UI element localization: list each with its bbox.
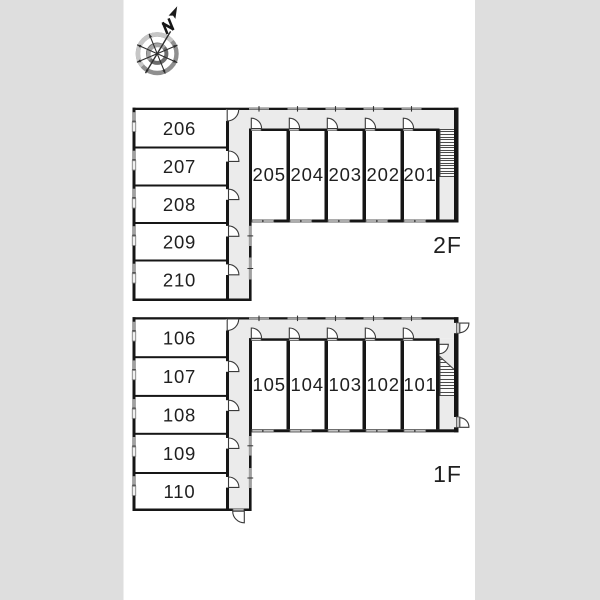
svg-text:107: 107	[163, 366, 196, 387]
svg-text:105: 105	[253, 374, 286, 395]
svg-text:101: 101	[403, 374, 436, 395]
svg-text:110: 110	[164, 481, 196, 502]
svg-text:206: 206	[163, 118, 196, 139]
svg-text:208: 208	[163, 194, 196, 215]
svg-text:205: 205	[253, 164, 286, 185]
svg-text:104: 104	[291, 374, 324, 395]
svg-text:210: 210	[163, 270, 196, 291]
svg-text:207: 207	[163, 156, 196, 177]
svg-text:204: 204	[291, 164, 324, 185]
svg-text:103: 103	[329, 374, 362, 395]
svg-text:209: 209	[163, 231, 196, 252]
svg-text:201: 201	[403, 164, 436, 185]
svg-text:203: 203	[329, 164, 362, 185]
svg-text:106: 106	[163, 328, 196, 349]
svg-text:102: 102	[367, 374, 400, 395]
svg-text:108: 108	[163, 405, 196, 426]
svg-text:202: 202	[367, 164, 400, 185]
svg-text:109: 109	[163, 443, 196, 464]
svg-text:1F: 1F	[433, 461, 462, 487]
svg-text:2F: 2F	[433, 232, 462, 258]
